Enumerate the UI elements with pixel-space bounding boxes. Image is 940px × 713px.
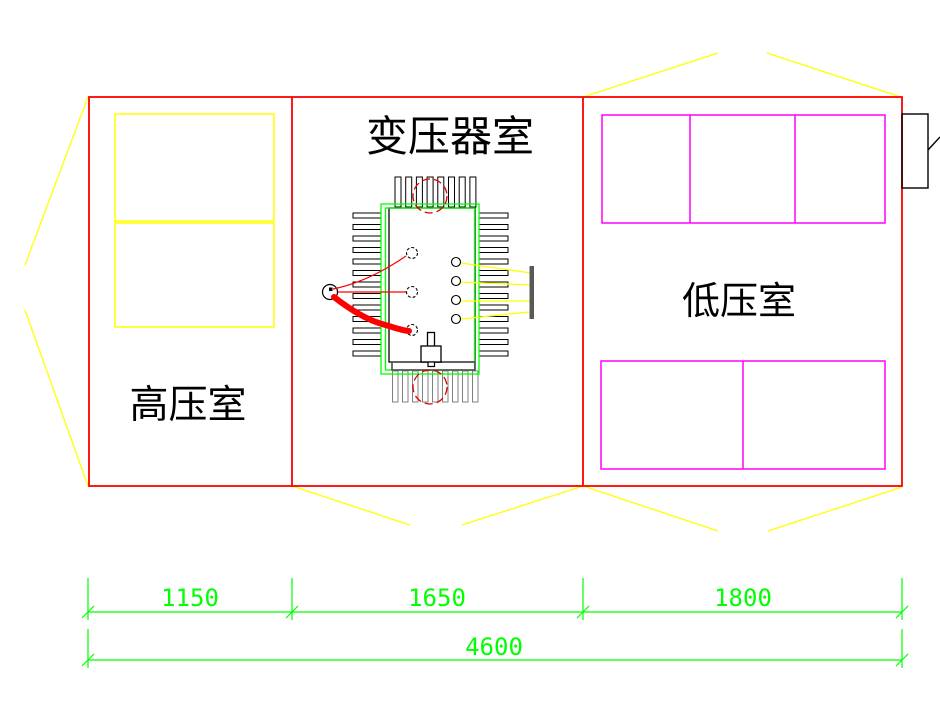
projection-line bbox=[583, 53, 718, 97]
duct-box bbox=[902, 114, 928, 188]
lv-cabinet-row-top bbox=[602, 115, 885, 223]
cad-canvas: 变压器室 高压室 低压室 1150 1650 1800 4600 bbox=[0, 0, 940, 713]
cable-terminal-mark bbox=[329, 288, 333, 292]
projection-line bbox=[462, 486, 583, 525]
transformer bbox=[323, 177, 535, 404]
hv-cabinet bbox=[115, 114, 274, 221]
projection-line bbox=[292, 486, 410, 525]
projection-line bbox=[25, 310, 88, 486]
label-high-voltage-room: 高压室 bbox=[129, 383, 246, 428]
projection-line bbox=[768, 487, 902, 531]
duct-leader-line bbox=[928, 137, 940, 150]
label-transformer-room: 变压器室 bbox=[366, 112, 534, 161]
bushing-stem bbox=[428, 333, 435, 347]
radiator-fins-top bbox=[395, 177, 476, 207]
hv-cabinets bbox=[115, 114, 274, 327]
bushing-neck bbox=[428, 362, 435, 367]
radiator-fins-left bbox=[353, 213, 381, 356]
radiator-fins-right bbox=[479, 213, 508, 356]
side-duct bbox=[902, 114, 940, 188]
dim-value-left-room: 1150 bbox=[161, 584, 219, 612]
radiator-fins-bottom bbox=[393, 371, 479, 402]
hv-cabinet bbox=[115, 223, 274, 327]
dim-value-middle-room: 1650 bbox=[408, 584, 466, 612]
label-low-voltage-room: 低压室 bbox=[682, 279, 796, 323]
projection-line bbox=[25, 97, 88, 265]
projection-line bbox=[767, 53, 901, 97]
bushing-body bbox=[421, 346, 441, 362]
dim-value-total: 4600 bbox=[465, 633, 523, 661]
dimension-labels: 1150 1650 1800 4600 bbox=[161, 584, 772, 661]
projection-line bbox=[583, 486, 718, 531]
busbar bbox=[530, 266, 535, 319]
drawing-svg: 变压器室 高压室 低压室 1150 1650 1800 4600 bbox=[0, 0, 940, 713]
dim-value-right-room: 1800 bbox=[714, 584, 772, 612]
